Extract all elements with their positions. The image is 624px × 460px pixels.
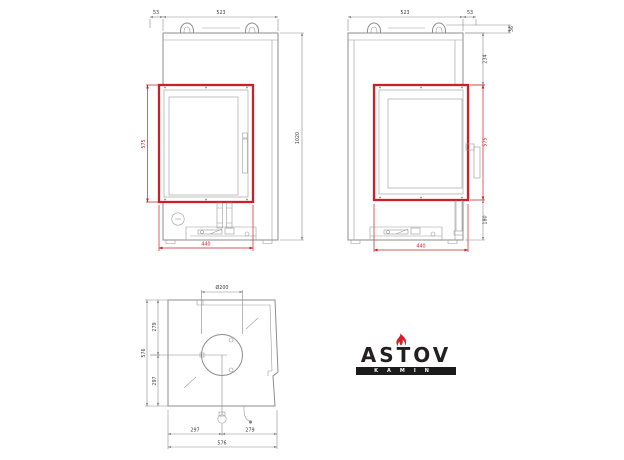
dim-top-bottom-left: 297 (190, 428, 199, 434)
grate-linkage (370, 228, 442, 236)
dim-side-width-top: 523 (400, 10, 409, 16)
base-feet (351, 240, 457, 244)
dim-side-base-height: 180 (483, 215, 489, 224)
dim-top-flue-diameter: Ø200 (216, 284, 229, 291)
dim-top-left-upper: 279 (152, 322, 158, 331)
support-channel (227, 203, 233, 228)
side-view: 523 53 36 234 575 180 440 (348, 10, 515, 252)
dim-front-width-top: 523 (216, 10, 225, 16)
technical-drawing-sheet: 53 523 1020 575 440 (0, 0, 624, 460)
dim-front-height-total: 1020 (295, 132, 301, 144)
dim-side-offset-top: 53 (467, 10, 473, 16)
brand-logo: ASTOV KAMIN (352, 330, 460, 382)
handle-bar (474, 147, 480, 178)
rear-notch (197, 300, 203, 305)
dim-front-width-bottom: 440 (201, 242, 210, 248)
front-view: 53 523 1020 575 440 (141, 10, 304, 251)
door-frame (159, 85, 253, 202)
dim-front-door-height: 575 (141, 139, 147, 148)
lifting-hook (246, 23, 259, 33)
dim-top-bottom-total: 576 (217, 441, 226, 447)
inner-wall-line (203, 305, 272, 376)
body-outline (168, 300, 278, 406)
dim-side-door-height: 575 (483, 137, 489, 146)
dim-side-top-to-door: 234 (483, 54, 489, 63)
top-view-dimensions: Ø200 279 297 576 297 279 576 (141, 284, 277, 449)
lifting-hook (181, 23, 194, 33)
brand-sub-badge: KAMIN (356, 367, 456, 375)
support-channel (217, 203, 223, 228)
base-assembly (351, 200, 463, 244)
dim-top-bottom-right: 279 (245, 428, 254, 434)
base-assembly (166, 203, 272, 244)
base-recess (186, 227, 256, 240)
drawing-svg: 53 523 1020 575 440 (0, 0, 624, 460)
flue-bolt (229, 338, 233, 342)
hatch-marks (184, 318, 258, 388)
brand-sub-text: KAMIN (374, 368, 438, 374)
grate-linkage (190, 228, 256, 236)
dim-top-left-total: 576 (141, 348, 147, 357)
base-feet (166, 240, 272, 244)
flue-bolt (229, 368, 233, 372)
dim-front-offset-top: 53 (153, 10, 159, 16)
dim-side-width-bottom: 440 (416, 244, 425, 250)
flue-duct (456, 200, 462, 231)
lifting-hook (368, 23, 381, 33)
dim-top-left-lower: 297 (152, 376, 158, 385)
top-plan-view: Ø200 279 297 576 297 279 576 (141, 284, 278, 449)
lifting-hook (433, 23, 446, 33)
brand-name: ASTOV (352, 345, 460, 365)
dim-side-collar-height: 36 (509, 26, 515, 32)
handle-hook (244, 406, 252, 424)
